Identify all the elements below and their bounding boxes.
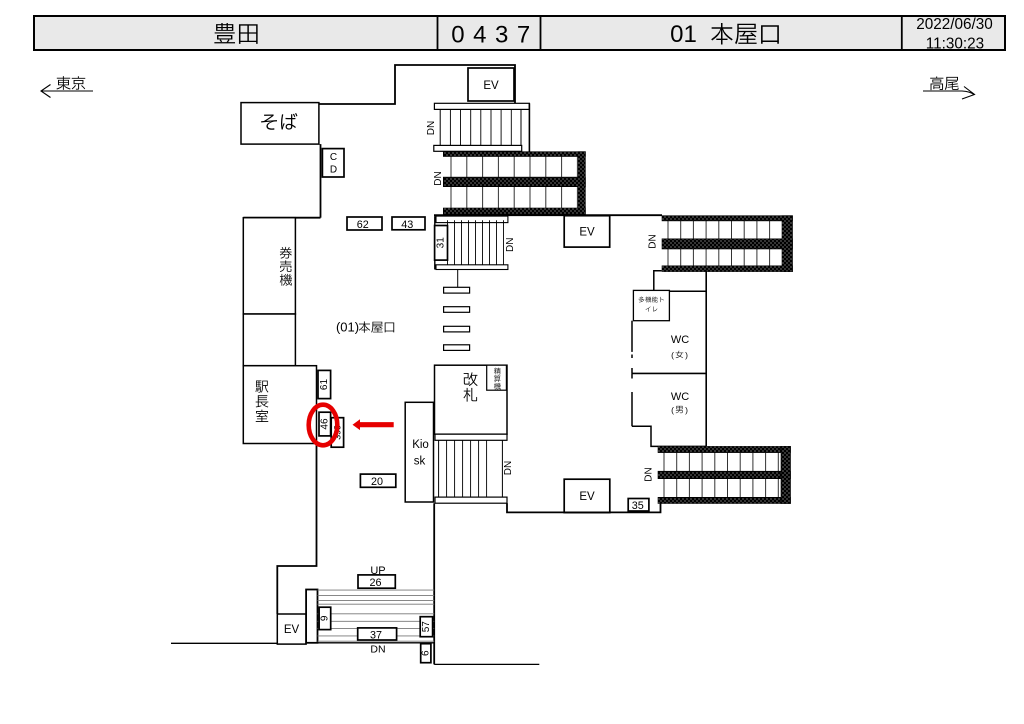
svg-text:EV: EV: [284, 624, 300, 636]
svg-text:2022/06/30: 2022/06/30: [916, 16, 993, 33]
svg-text:D: D: [330, 165, 337, 176]
svg-text:DN: DN: [644, 467, 655, 481]
svg-text:EV: EV: [483, 80, 499, 92]
svg-text:6: 6: [420, 650, 431, 656]
svg-text:DN: DN: [503, 461, 514, 475]
svg-text:62: 62: [357, 219, 369, 231]
svg-text:DN: DN: [370, 643, 385, 655]
svg-text:26: 26: [369, 577, 381, 589]
svg-text:57: 57: [421, 621, 432, 633]
svg-text:(: (: [671, 350, 674, 360]
svg-text:Kio: Kio: [412, 439, 429, 451]
svg-text:DN: DN: [426, 121, 437, 135]
svg-text:DN: DN: [433, 171, 444, 185]
svg-text:EV: EV: [579, 227, 595, 239]
svg-text:11:30:23: 11:30:23: [926, 35, 984, 52]
svg-text:WC: WC: [671, 391, 689, 403]
svg-text:01: 01: [670, 21, 697, 48]
svg-text:9: 9: [319, 615, 330, 621]
svg-text:35: 35: [632, 500, 644, 512]
svg-text:EV: EV: [579, 491, 595, 503]
svg-text:20: 20: [371, 476, 383, 488]
svg-text:37: 37: [370, 629, 382, 641]
svg-text:43: 43: [401, 219, 413, 231]
svg-text:C: C: [330, 152, 337, 163]
svg-text:0437: 0437: [451, 21, 538, 48]
svg-text:DN: DN: [505, 238, 516, 252]
svg-text:(: (: [671, 405, 674, 415]
svg-text:sk: sk: [414, 456, 426, 468]
svg-text:WC: WC: [671, 334, 689, 346]
svg-text:46: 46: [319, 418, 330, 430]
svg-text:DN: DN: [648, 234, 659, 248]
svg-text:(01): (01): [336, 320, 359, 335]
svg-text:): ): [685, 350, 688, 360]
svg-text:): ): [685, 405, 688, 415]
svg-text:31: 31: [436, 237, 447, 249]
svg-text:61: 61: [319, 379, 330, 391]
